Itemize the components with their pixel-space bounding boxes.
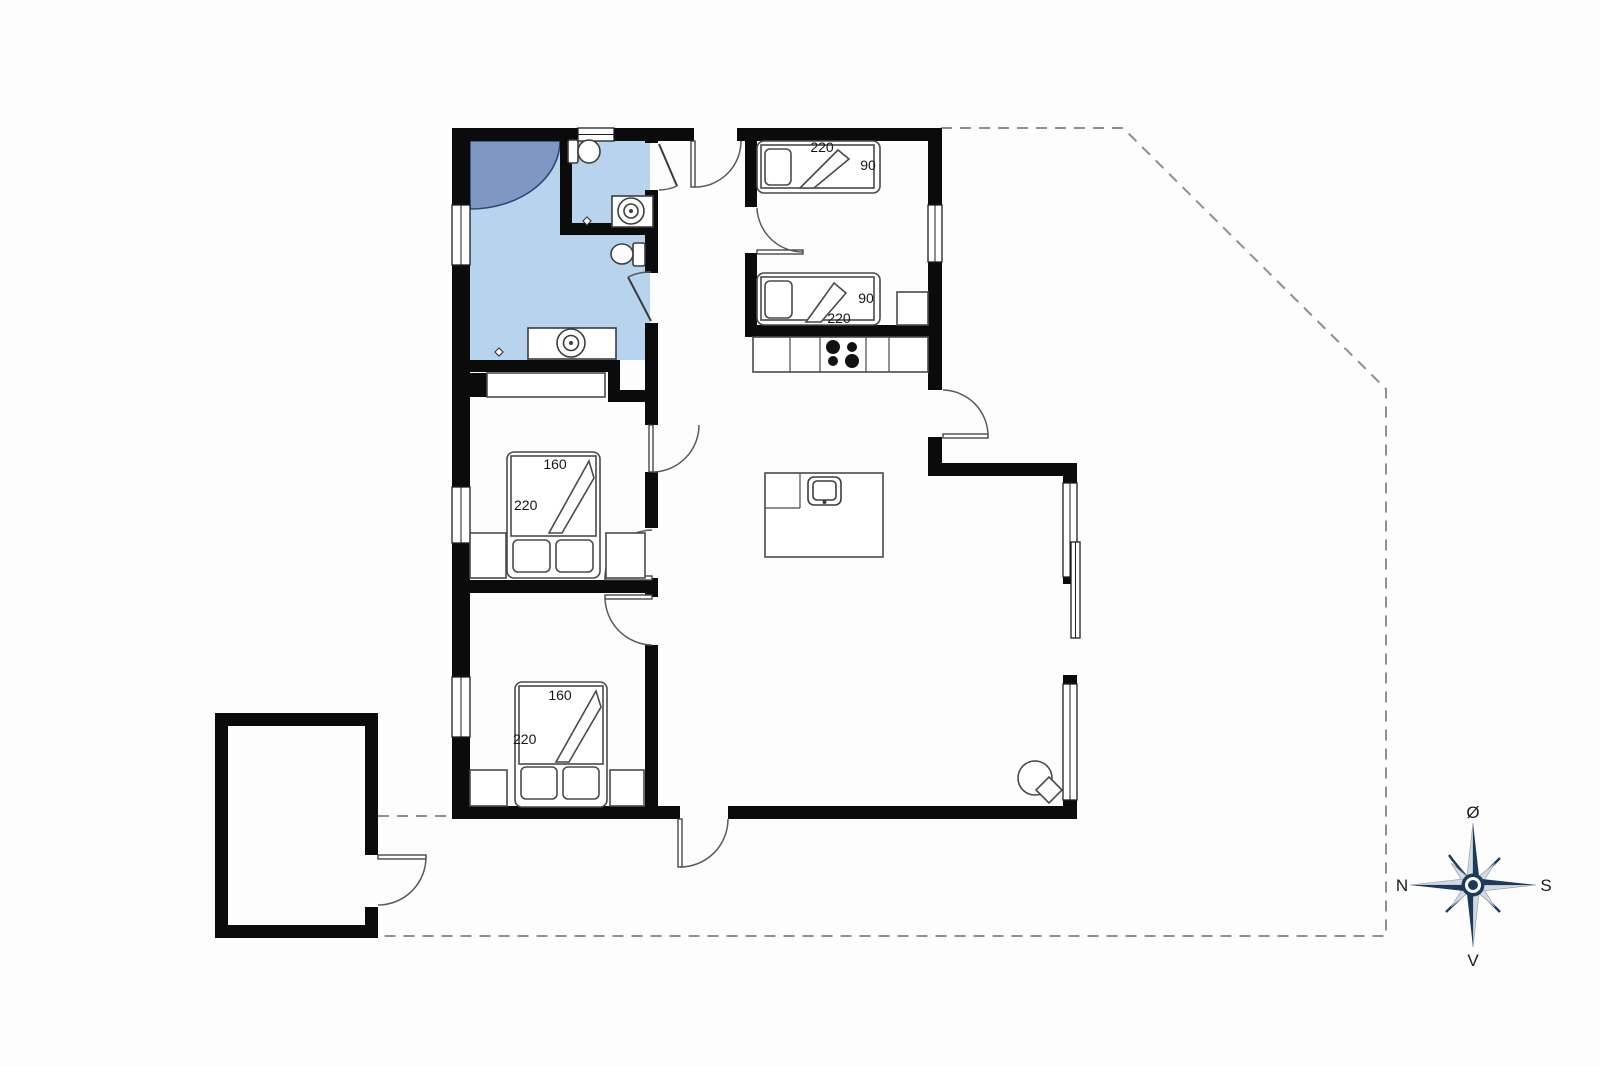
washbasin-symbol	[612, 196, 653, 227]
compass-rose: Ø S V N	[1396, 803, 1552, 970]
bed-width-label: 90	[858, 290, 874, 306]
toilet-symbol	[568, 140, 600, 163]
compass-north-label: N	[1396, 876, 1408, 895]
nightstand	[610, 770, 644, 806]
bed-single-bottom: 90 220	[757, 273, 880, 326]
bed-length-label: 220	[810, 139, 834, 155]
bed-length-label: 220	[514, 497, 538, 513]
floorplan-drawing: 220 90 90 220 160 220 160 220	[0, 0, 1600, 1066]
kitchen	[753, 337, 928, 557]
floorplan-canvas: 220 90 90 220 160 220 160 220	[0, 0, 1600, 1066]
bed-single-top: 220 90	[757, 139, 880, 193]
bed-length-label: 220	[827, 310, 851, 326]
hall-door	[649, 425, 699, 472]
bed-length-label: 220	[513, 731, 537, 747]
window	[452, 205, 470, 265]
window	[1063, 684, 1077, 800]
toilet-symbol	[611, 243, 645, 266]
compass-west-label: V	[1467, 951, 1479, 970]
wardrobe	[897, 292, 928, 325]
south-exterior-door	[678, 819, 728, 867]
nightstand	[470, 770, 507, 806]
single-bedroom-door	[757, 208, 803, 254]
nightstand	[470, 533, 506, 578]
window	[452, 677, 470, 737]
window	[578, 128, 614, 141]
bed-width-label: 160	[543, 456, 567, 472]
entrance-door	[691, 141, 741, 187]
window	[452, 487, 470, 543]
nightstand	[606, 533, 645, 578]
wardrobe	[487, 373, 605, 397]
fireplace-symbol	[1018, 761, 1062, 803]
sliding-door-panel	[1071, 542, 1080, 638]
kitchen-terrace-door	[943, 390, 988, 438]
washbasin-symbol	[528, 328, 616, 359]
kitchen-counter	[753, 337, 928, 372]
bed-width-label: 160	[548, 687, 572, 703]
wc-door	[659, 144, 677, 190]
window	[928, 205, 942, 262]
garage-door	[378, 855, 426, 905]
compass-east-label: Ø	[1466, 803, 1479, 822]
lower-double-bedroom-door	[605, 595, 652, 645]
kitchen-island	[765, 473, 883, 557]
bed-width-label: 90	[860, 157, 876, 173]
island-sink-symbol	[808, 477, 841, 505]
bed-double-upper: 160 220	[507, 452, 600, 578]
bed-double-lower: 160 220	[513, 682, 607, 807]
compass-south-label: S	[1540, 876, 1551, 895]
walls	[215, 128, 1077, 938]
